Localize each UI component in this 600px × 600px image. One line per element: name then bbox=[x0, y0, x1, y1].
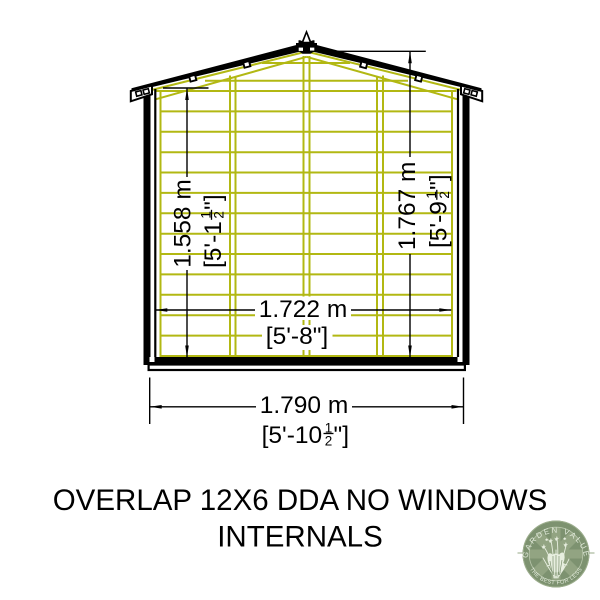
svg-text:1.790 m: 1.790 m bbox=[260, 392, 349, 419]
svg-text:[5'-8"]: [5'-8"] bbox=[266, 323, 328, 350]
svg-text:1.722 m: 1.722 m bbox=[259, 296, 348, 323]
svg-text:2: 2 bbox=[212, 211, 227, 219]
svg-text:[5'-1: [5'-1 bbox=[200, 221, 227, 268]
svg-text:[5'-10: [5'-10 bbox=[262, 422, 323, 449]
svg-text:2: 2 bbox=[437, 191, 452, 199]
svg-text:INTERNALS: INTERNALS bbox=[217, 521, 383, 554]
svg-text:1.558 m: 1.558 m bbox=[170, 179, 197, 268]
svg-text:OVERLAP 12X6 DDA NO WINDOWS: OVERLAP 12X6 DDA NO WINDOWS bbox=[53, 484, 548, 517]
svg-text:[5'-9: [5'-9 bbox=[425, 201, 452, 248]
svg-text:"]: "] bbox=[200, 194, 227, 210]
svg-text:"]: "] bbox=[334, 422, 350, 449]
svg-text:1.767 m: 1.767 m bbox=[394, 162, 421, 251]
svg-text:"]: "] bbox=[425, 174, 452, 190]
svg-text:2: 2 bbox=[325, 434, 333, 449]
